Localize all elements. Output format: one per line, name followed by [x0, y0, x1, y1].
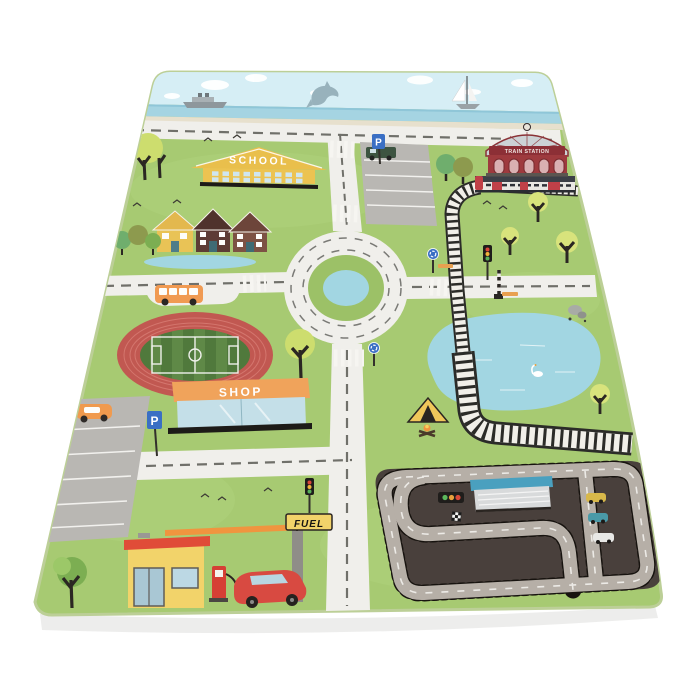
station-clock — [524, 124, 531, 131]
pit-garage — [470, 476, 553, 512]
start-lights — [438, 492, 464, 503]
rail-crossing-zebra — [430, 287, 449, 288]
product-photo: TRAIN STATION SCHOOL — [0, 0, 696, 696]
train-station-sign-text: TRAIN STATION — [505, 149, 549, 155]
parking-lot-top — [360, 142, 437, 226]
school-sign-text: SCHOOL — [229, 154, 289, 168]
fuel-sign: FUEL — [286, 514, 332, 531]
roundabout — [284, 231, 408, 345]
shop-building: SHOP — [168, 378, 312, 434]
race-track — [376, 461, 662, 600]
red-car — [234, 570, 306, 608]
play-rug-scene: TRAIN STATION SCHOOL — [0, 0, 696, 696]
shop-sign-text: SHOP — [219, 384, 263, 399]
train — [475, 176, 575, 193]
checkered-flag — [451, 512, 461, 522]
fuel-building — [124, 533, 210, 608]
houses-row — [153, 209, 271, 252]
small-pond — [144, 255, 256, 269]
parking-sign-text: P — [150, 414, 158, 428]
seaside-strip — [126, 60, 567, 130]
parking-sign-text: P — [375, 138, 382, 149]
fuel-sign-text: FUEL — [294, 519, 324, 530]
roundabout-pond — [323, 270, 369, 306]
bus — [155, 285, 203, 306]
